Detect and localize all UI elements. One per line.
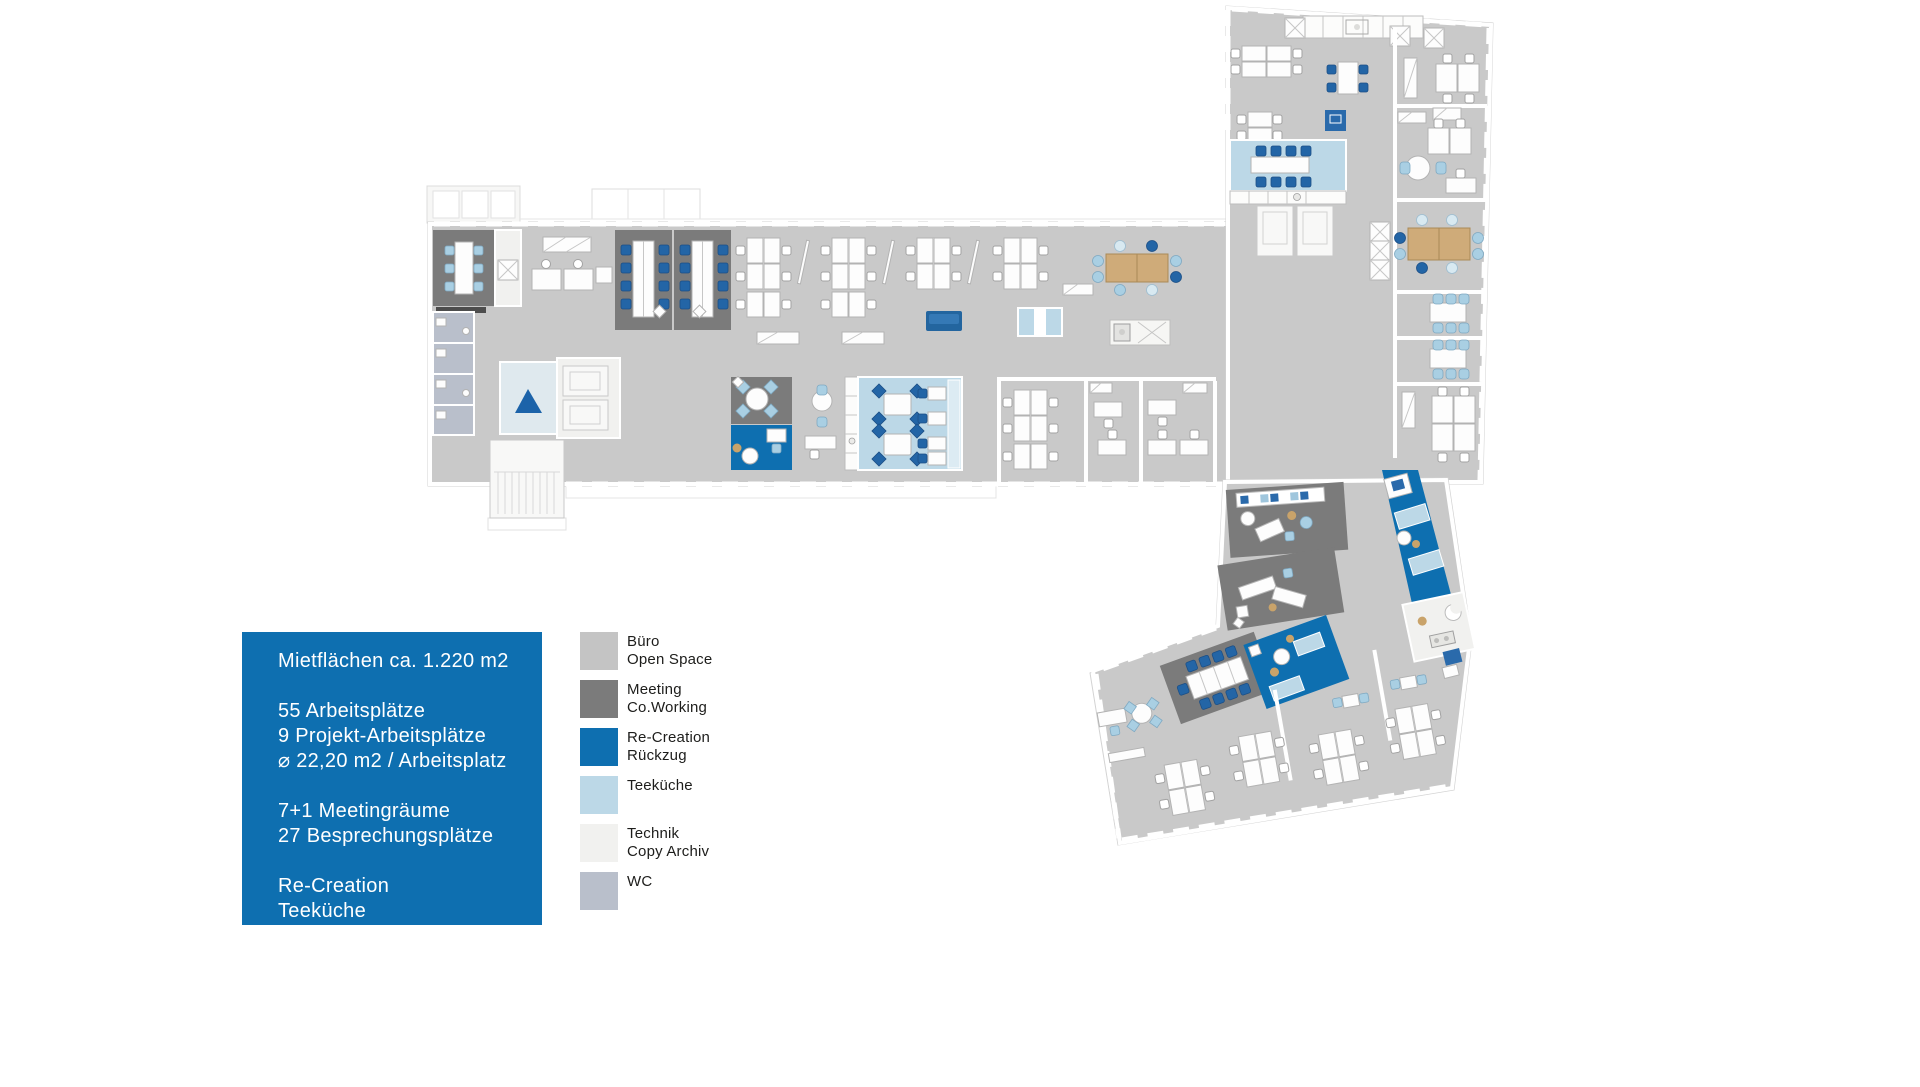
- lounge-sofa: [926, 311, 962, 331]
- teekueche-room: [845, 377, 962, 470]
- coworking-casual-1: [1226, 482, 1348, 558]
- wc-room-left: [433, 312, 474, 435]
- legend-item-open-space: Büro Open Space: [580, 632, 880, 670]
- legend-swatch-open-space: [580, 632, 618, 670]
- meeting-room-1: [433, 230, 494, 313]
- floorplan-page: Mietflächen ca. 1.220 m2 55 Arbeitsplätz…: [0, 0, 1920, 1087]
- info-group-workplaces: 55 Arbeitsplätze 9 Projekt-Arbeitsplätze…: [278, 699, 512, 774]
- lounge-cabinet: [1325, 110, 1346, 131]
- meeting-room-round: [731, 376, 792, 424]
- technik-closet: [495, 230, 521, 306]
- info-box: Mietflächen ca. 1.220 m2 55 Arbeitsplätz…: [242, 632, 542, 925]
- copy-station: [1110, 320, 1170, 345]
- legend-swatch-wc: [580, 872, 618, 910]
- legend-item-teekueche: Teeküche: [580, 776, 880, 814]
- wing-right: [1226, 6, 1493, 484]
- kitchen-counter-mid: [1230, 191, 1346, 204]
- legend: Büro Open Space Meeting Co.Working Re-Cr…: [580, 632, 880, 920]
- entrance-room: [500, 362, 557, 434]
- legend-item-recreation: Re-Creation Rückzug: [580, 728, 880, 766]
- info-group-recreation: Re-Creation Teeküche: [278, 874, 512, 924]
- elevator-block: [557, 358, 620, 438]
- meeting-room-right-2: [1430, 340, 1469, 379]
- legend-swatch-recreation: [580, 728, 618, 766]
- legend-swatch-teekueche: [580, 776, 618, 814]
- stairwell-main: [490, 440, 564, 518]
- legend-swatch-meeting: [580, 680, 618, 718]
- legend-item-meeting: Meeting Co.Working: [580, 680, 880, 718]
- phone-booth: [1018, 308, 1062, 336]
- legend-swatch-technik: [580, 824, 618, 862]
- technik-lower: [1402, 592, 1475, 662]
- info-group-meetings: 7+1 Meetingräume 27 Besprechungsplätze: [278, 799, 512, 849]
- legend-item-technik: Technik Copy Archiv: [580, 824, 880, 862]
- wing-main: [428, 222, 1339, 518]
- legend-item-wc: WC: [580, 872, 880, 910]
- info-title: Mietflächen ca. 1.220 m2: [278, 649, 512, 674]
- wing-lower: [1090, 470, 1475, 845]
- meeting-room-right-1: [1430, 294, 1469, 333]
- meeting-room-teekueche-blue: [1230, 140, 1346, 191]
- coworking-room-1: [615, 230, 672, 330]
- focus-room-blue: [731, 425, 792, 470]
